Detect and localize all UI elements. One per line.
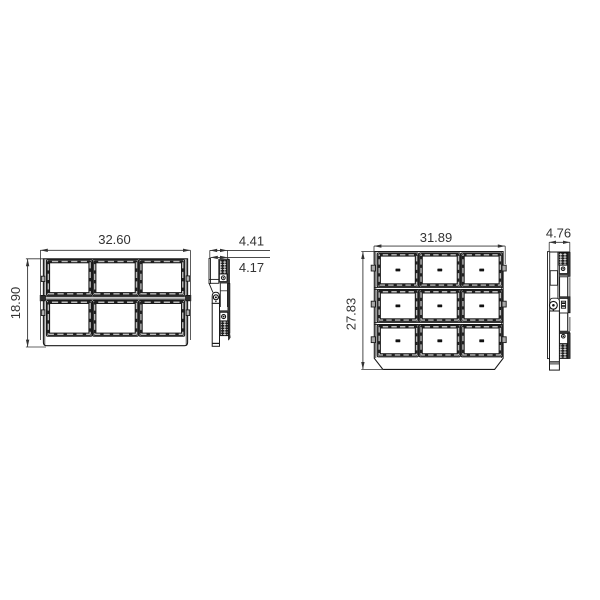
svg-text:27.83: 27.83 — [344, 298, 359, 331]
svg-text:4.17: 4.17 — [239, 260, 264, 275]
svg-text:32.60: 32.60 — [98, 232, 131, 247]
svg-text:31.89: 31.89 — [420, 230, 453, 245]
svg-text:4.76: 4.76 — [546, 226, 571, 241]
svg-text:18.90: 18.90 — [8, 287, 23, 320]
svg-text:4.41: 4.41 — [239, 234, 264, 249]
